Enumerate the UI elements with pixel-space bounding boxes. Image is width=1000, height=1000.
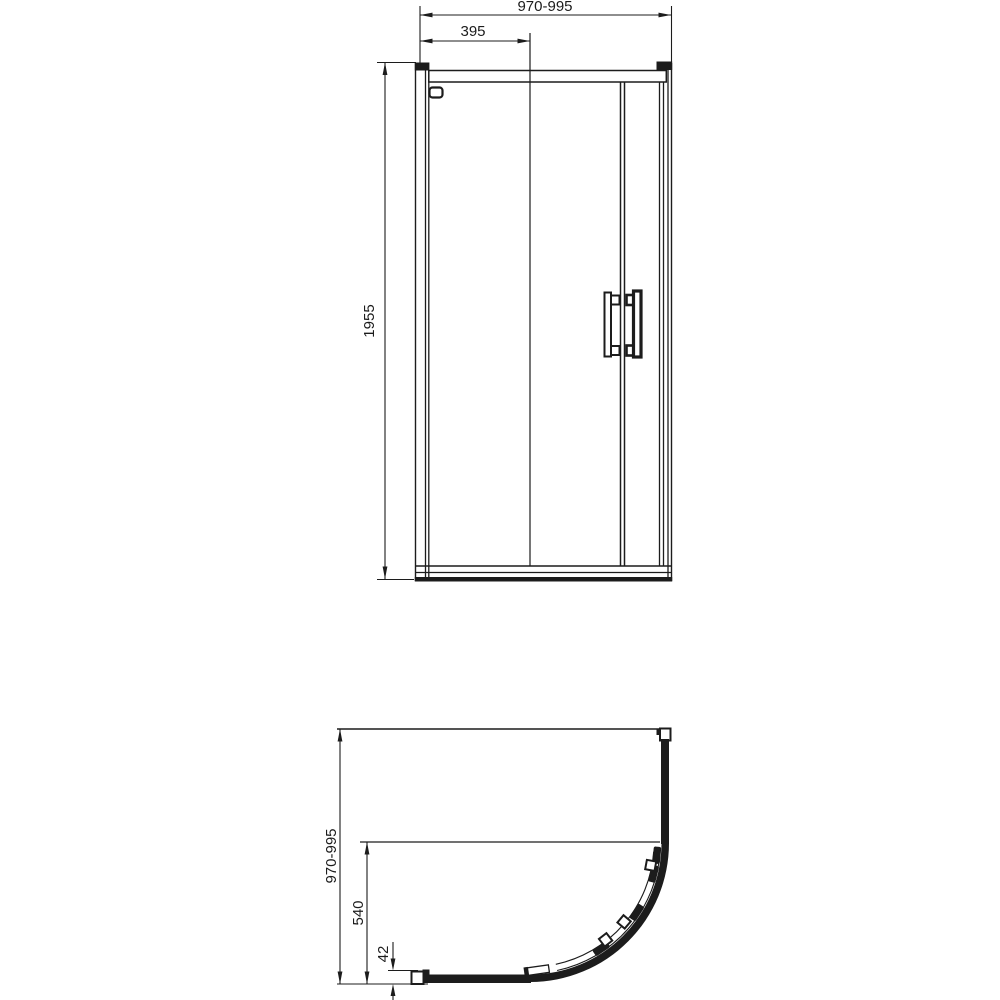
plan-door-opening-label: 540 (350, 900, 367, 925)
front-panel-width-label: 395 (460, 23, 485, 40)
plan-depth-dimension: 970-995 (323, 729, 342, 984)
front-elevation-view: 970-995 395 1955 (361, 0, 672, 582)
back-handle-top-foot (611, 296, 620, 305)
right-profile-top-cap (657, 62, 673, 71)
plan-adjustment-dimension: 42 (375, 942, 418, 1000)
top-rail (429, 71, 667, 83)
front-height-dimension: 1955 (361, 63, 416, 580)
shower-enclosure-technical-drawing: 970-995 395 1955 (0, 0, 1000, 1000)
plan-right-wall-profile (660, 729, 671, 741)
plan-bottom-track (428, 975, 531, 984)
plan-adjustment-label: 42 (375, 946, 392, 963)
roller-clip (645, 860, 656, 871)
plan-view: 970-995 540 42 (323, 729, 671, 1000)
door-handles (605, 291, 642, 357)
wall-bracket-knob (430, 88, 443, 98)
plan-sliding-door (523, 846, 661, 976)
arrowhead-bottom (338, 972, 343, 985)
arrowhead-right (659, 13, 672, 18)
arrowhead-left (420, 39, 433, 44)
back-handle-bottom-foot (611, 346, 620, 355)
bottom-rail-base (415, 577, 672, 582)
plan-depth-label: 970-995 (323, 828, 340, 883)
arrowhead-right (518, 39, 531, 44)
front-height-label: 1955 (361, 304, 378, 337)
arrowhead-top (383, 63, 388, 76)
front-width-label: 970-995 (517, 0, 572, 15)
plan-left-wall-profile (412, 972, 424, 985)
arrowhead-bottom (383, 567, 388, 580)
plan-door-opening-dimension: 540 (350, 842, 369, 984)
arrowhead-top (338, 729, 343, 742)
back-door-handle (605, 293, 612, 357)
plan-right-side-panel (661, 739, 669, 844)
front-door-handle (634, 291, 642, 357)
arrowhead-up (391, 984, 396, 996)
front-panel-width-dimension: 395 (420, 23, 530, 43)
arrowhead-left (420, 13, 433, 18)
front-overall-width-dimension: 970-995 (420, 0, 672, 63)
arrowhead-bottom (365, 972, 370, 985)
left-profile-top-cap (415, 63, 430, 71)
arrowhead-top (365, 842, 370, 855)
